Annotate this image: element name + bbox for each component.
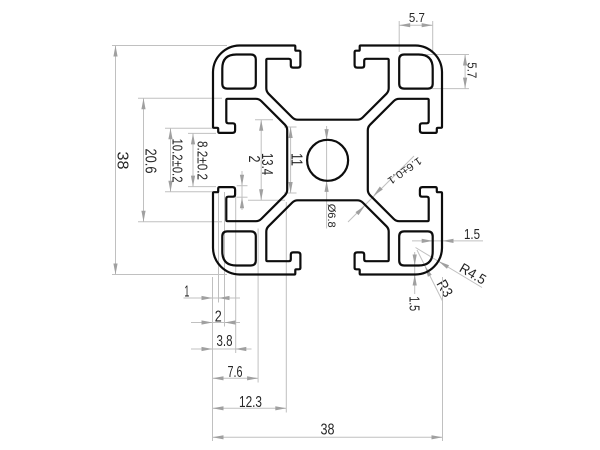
svg-text:3.8: 3.8 (217, 333, 233, 350)
svg-text:8.2±0.2: 8.2±0.2 (193, 141, 209, 180)
svg-text:7.6: 7.6 (228, 364, 243, 381)
svg-text:11: 11 (288, 153, 305, 166)
svg-text:12.3: 12.3 (239, 394, 262, 411)
svg-text:2: 2 (215, 308, 222, 325)
svg-text:38: 38 (321, 422, 335, 439)
svg-text:10.2±0.2: 10.2±0.2 (168, 139, 184, 183)
svg-text:13.4: 13.4 (258, 153, 275, 175)
svg-text:1.5: 1.5 (464, 226, 480, 243)
svg-text:38: 38 (114, 152, 131, 170)
svg-text:1: 1 (184, 283, 189, 300)
svg-text:5.7: 5.7 (409, 11, 425, 25)
svg-text:5.7: 5.7 (465, 62, 479, 78)
svg-text:20.6: 20.6 (142, 149, 159, 174)
svg-text:Ø6.8: Ø6.8 (325, 204, 337, 228)
svg-text:1.5: 1.5 (406, 296, 423, 311)
